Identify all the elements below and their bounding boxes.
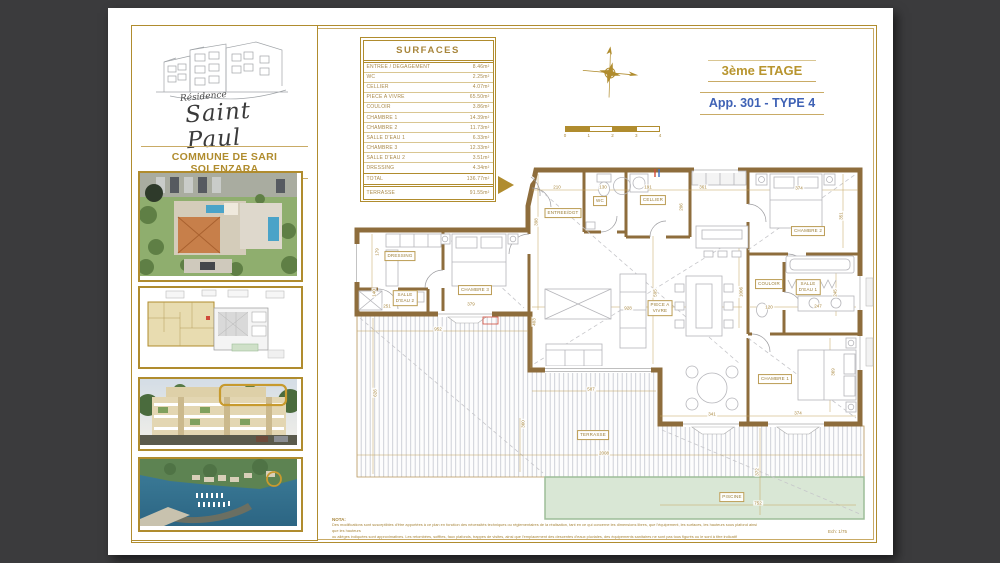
scale-bar: 01234 — [565, 126, 660, 140]
apartment-title: App. 301 - TYPE 4 — [700, 92, 824, 115]
surface-row: COULOIR3.86m² — [364, 103, 493, 113]
surface-label: CHAMBRE 2 — [367, 125, 398, 131]
scale-note: Ech: 1/75 — [828, 529, 847, 534]
surface-label: WC — [367, 74, 376, 80]
entrance-arrow-icon — [498, 176, 514, 194]
surface-value: 14.39m² — [470, 115, 490, 121]
surface-value: 6.33m² — [473, 135, 490, 141]
surface-value: 65.50m² — [470, 94, 490, 100]
nota-block: NOTA: Des modifications sont susceptible… — [332, 517, 764, 540]
floor-title: 3ème ETAGE — [708, 60, 816, 82]
floor-locator-image — [138, 286, 303, 369]
surface-value: 2.25m² — [473, 74, 490, 80]
surface-label: COULOIR — [367, 104, 391, 110]
surface-row: SALLE D'EAU 16.33m² — [364, 133, 493, 143]
scale-segment — [590, 127, 614, 131]
scale-segment — [613, 127, 637, 131]
floor-locator-graphic — [140, 288, 297, 363]
surface-row: PIECE A VIVRE65.50m² — [364, 93, 493, 103]
scale-tick: 4 — [659, 133, 662, 138]
compass-rose-icon — [579, 40, 641, 106]
surface-row: ENTREE / DEGAGEMENT8.46m² — [364, 63, 493, 73]
marina-photo-image — [138, 457, 303, 532]
surfaces-table-title: SURFACES — [364, 41, 493, 63]
surface-value: 3.86m² — [473, 104, 490, 110]
plan-sheet: Résidence Saint Paul COMMUNE DE SARI SOL… — [108, 8, 893, 555]
building-render-graphic — [140, 379, 297, 445]
scale-tick: 2 — [611, 133, 614, 138]
surface-label: PIECE A VIVRE — [367, 94, 405, 100]
marina-photo-graphic — [140, 459, 297, 526]
nota-line-1: Des modifications sont susceptibles d'êt… — [332, 522, 764, 534]
scale-tick: 3 — [635, 133, 638, 138]
surface-row: CHAMBRE 114.39m² — [364, 113, 493, 123]
site-aerial-image — [138, 171, 303, 282]
scale-tick: 1 — [587, 133, 590, 138]
surface-row: CHAMBRE 211.73m² — [364, 123, 493, 133]
scale-tick: 0 — [564, 133, 567, 138]
page: { "colors":{"gold":"#b08c2e","gold_text"… — [0, 0, 1000, 563]
residence-logo: Résidence Saint Paul — [140, 34, 310, 142]
surface-value: 8.46m² — [473, 64, 490, 70]
sidebar: Résidence Saint Paul COMMUNE DE SARI SOL… — [131, 25, 318, 541]
scale-bar-ticks: 01234 — [565, 132, 660, 139]
surface-label: ENTREE / DEGAGEMENT — [367, 64, 431, 70]
scale-segment — [637, 127, 660, 131]
surface-label: CHAMBRE 1 — [367, 115, 398, 121]
surface-value: 4.07m² — [473, 84, 490, 90]
surface-label: CELLIER — [367, 84, 389, 90]
scale-segment — [566, 127, 590, 131]
surface-value: 11.73m² — [470, 125, 489, 131]
pool-area — [545, 477, 864, 519]
site-aerial-graphic — [140, 173, 297, 276]
surface-row: CELLIER4.07m² — [364, 83, 493, 93]
surface-label: SALLE D'EAU 1 — [367, 135, 406, 141]
building-render-image — [138, 377, 303, 451]
surface-row: WC2.25m² — [364, 73, 493, 83]
floor-plan-drawing — [330, 148, 886, 533]
nota-line-2: ou allèges indiquées sont approximatives… — [332, 534, 764, 540]
